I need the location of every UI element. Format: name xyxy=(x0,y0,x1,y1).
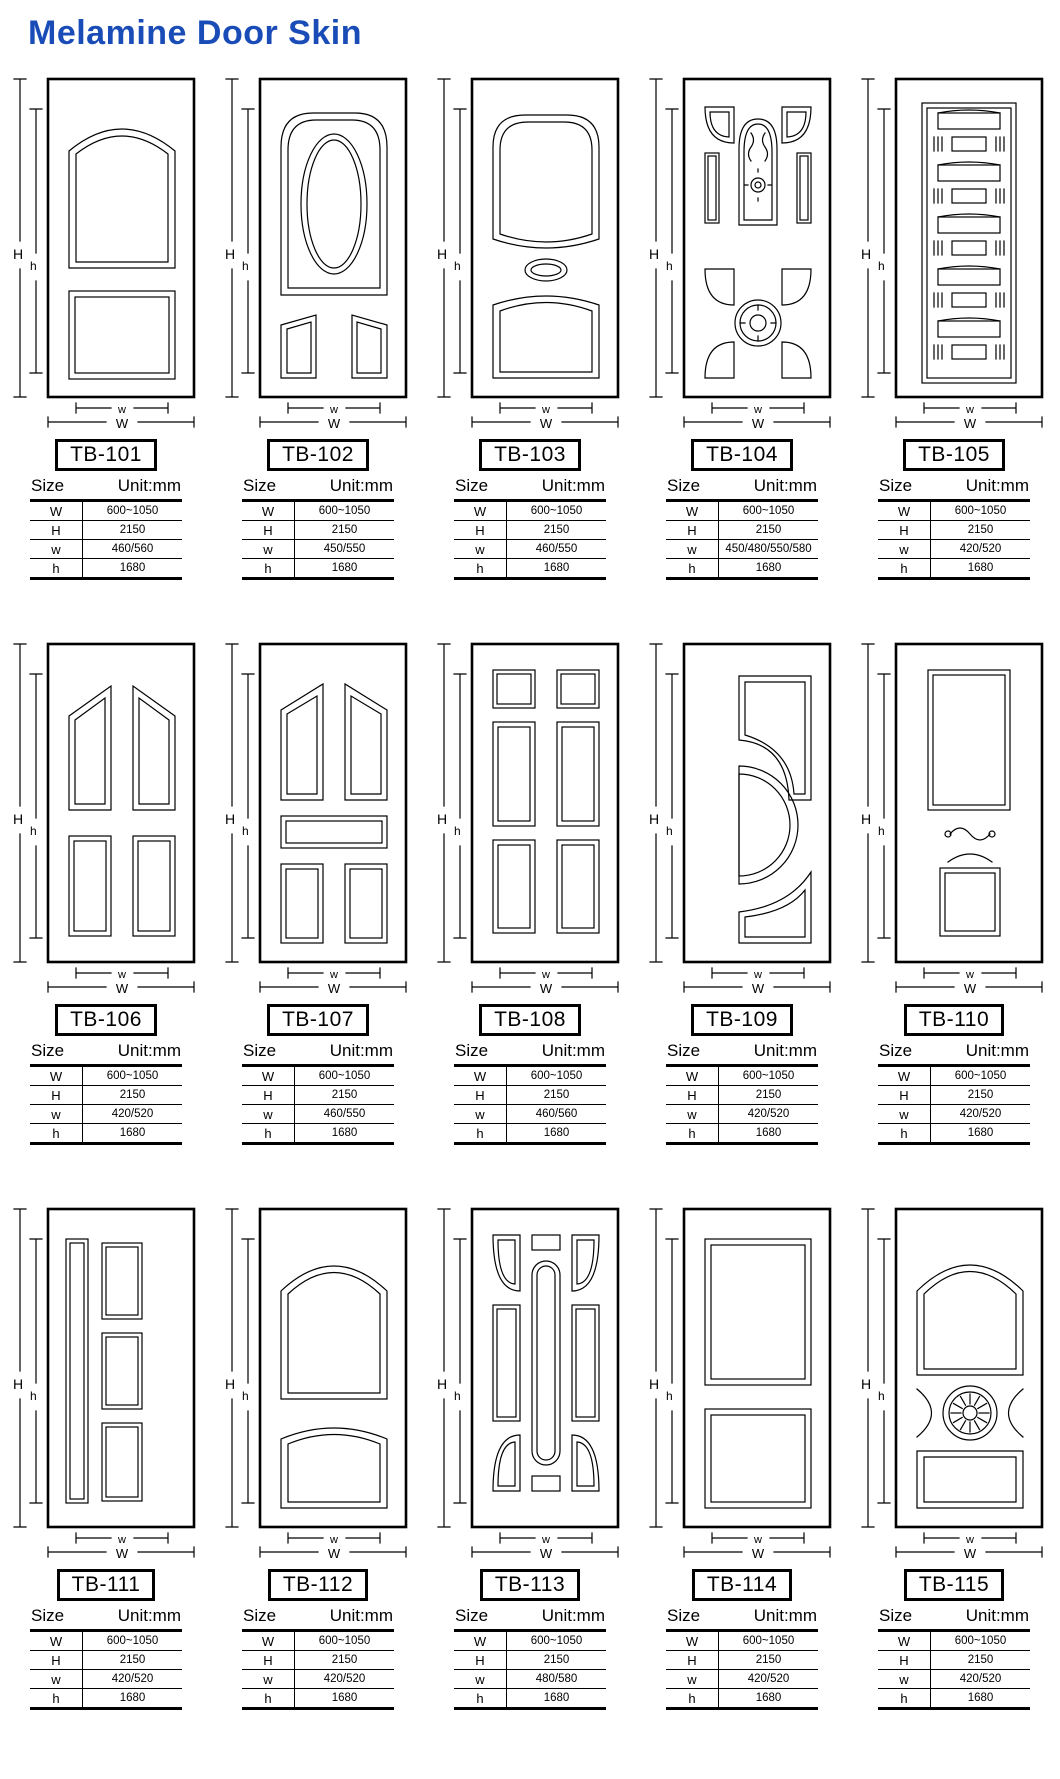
size-row-label: h xyxy=(242,1124,295,1142)
dim-label-outer-width: W xyxy=(752,416,765,431)
door-card-tb-115: H h w W TB-115 Size Unit:mm W 600~1050 H… xyxy=(848,1203,1060,1710)
size-table: Size Unit:mm W 600~1050 H 2150 w 420/520… xyxy=(242,1606,394,1710)
door-linework xyxy=(226,79,406,427)
door-code: TB-108 xyxy=(494,1008,566,1031)
size-table-header: Size Unit:mm xyxy=(454,1606,606,1629)
door-outline xyxy=(48,79,194,397)
dim-label-inner-width: w xyxy=(117,969,126,981)
size-row-w: w 420/520 xyxy=(666,1670,818,1689)
size-row-label: w xyxy=(666,1670,719,1688)
door-linework xyxy=(650,79,830,427)
size-row-label: W xyxy=(30,1067,83,1085)
door-code: TB-113 xyxy=(495,1573,565,1596)
size-row-label: H xyxy=(242,1651,295,1669)
size-row-value: 1680 xyxy=(295,559,394,577)
size-table-unit: Unit:mm xyxy=(118,1041,181,1061)
dim-label-inner-height: h xyxy=(30,824,37,838)
size-table-title: Size xyxy=(667,476,700,496)
size-row-w: w 420/520 xyxy=(878,1670,1030,1689)
door-outline xyxy=(684,644,830,962)
size-table-title: Size xyxy=(243,1041,276,1061)
size-table: Size Unit:mm W 600~1050 H 2150 w 450/550… xyxy=(242,476,394,580)
size-row-value: 600~1050 xyxy=(507,1632,606,1650)
door-card-tb-111: H h w W TB-111 Size Unit:mm W 600~1050 H… xyxy=(0,1203,212,1710)
dim-label-inner-height: h xyxy=(666,259,673,273)
size-row-label: H xyxy=(666,1086,719,1104)
size-row-label: W xyxy=(878,502,931,520)
size-table-header: Size Unit:mm xyxy=(878,1606,1030,1629)
dim-label-outer-height: H xyxy=(225,811,235,827)
size-row-H: H 2150 xyxy=(30,521,182,540)
size-row-label: H xyxy=(878,1086,931,1104)
size-row-H: H 2150 xyxy=(30,1086,182,1105)
size-row-H: H 2150 xyxy=(454,1086,606,1105)
size-row-H: H 2150 xyxy=(878,1651,1030,1670)
size-table-unit: Unit:mm xyxy=(542,476,605,496)
dim-label-outer-width: W xyxy=(328,416,341,431)
dimension-labels: H h w W xyxy=(225,246,341,431)
door-card-tb-113: H h w W TB-113 Size Unit:mm W 600~1050 H… xyxy=(424,1203,636,1710)
size-table-unit: Unit:mm xyxy=(754,1041,817,1061)
size-row-H: H 2150 xyxy=(242,1086,394,1105)
size-row-w: w 420/520 xyxy=(666,1105,818,1124)
size-row-value: 2150 xyxy=(295,1086,394,1104)
door-code-badge: TB-110 xyxy=(904,1004,1004,1036)
door-code: TB-112 xyxy=(283,1573,353,1596)
dim-label-outer-height: H xyxy=(649,811,659,827)
door-code: TB-114 xyxy=(707,1573,777,1596)
size-row-value: 1680 xyxy=(83,1124,182,1142)
size-row-value: 420/520 xyxy=(83,1105,182,1123)
door-card-tb-109: H h w W TB-109 Size Unit:mm W 600~1050 H… xyxy=(636,638,848,1145)
size-row-H: H 2150 xyxy=(666,1086,818,1105)
dimension-labels: H h w W xyxy=(649,1376,765,1561)
dim-label-inner-width: w xyxy=(117,1534,126,1546)
dim-label-outer-height: H xyxy=(649,1376,659,1392)
dim-label-outer-width: W xyxy=(540,1546,553,1561)
size-table-unit: Unit:mm xyxy=(966,1606,1029,1626)
size-row-W: W 600~1050 xyxy=(454,1067,606,1086)
size-row-value: 460/560 xyxy=(83,540,182,558)
size-row-value: 1680 xyxy=(295,1124,394,1142)
door-card-tb-108: H h w W TB-108 Size Unit:mm W 600~1050 H… xyxy=(424,638,636,1145)
door-linework xyxy=(438,79,618,427)
door-code: TB-106 xyxy=(70,1008,142,1031)
size-row-W: W 600~1050 xyxy=(454,502,606,521)
size-row-W: W 600~1050 xyxy=(878,1067,1030,1086)
size-row-h: h 1680 xyxy=(878,1689,1030,1707)
size-row-label: H xyxy=(242,1086,295,1104)
size-row-W: W 600~1050 xyxy=(30,502,182,521)
size-row-label: h xyxy=(878,1689,931,1707)
size-row-value: 600~1050 xyxy=(931,1632,1030,1650)
size-table-body: W 600~1050 H 2150 w 460/560 h 1680 xyxy=(454,1064,606,1145)
dimension-labels: H h w W xyxy=(649,246,765,431)
door-outline xyxy=(260,1209,406,1527)
dim-label-outer-height: H xyxy=(225,246,235,262)
size-table-title: Size xyxy=(667,1606,700,1626)
dim-label-inner-width: w xyxy=(541,969,550,981)
size-table-header: Size Unit:mm xyxy=(666,1041,818,1064)
size-row-label: w xyxy=(666,540,719,558)
size-row-value: 2150 xyxy=(931,521,1030,539)
size-row-w: w 480/580 xyxy=(454,1670,606,1689)
size-table-title: Size xyxy=(455,1041,488,1061)
size-row-value: 2150 xyxy=(83,521,182,539)
door-code-badge: TB-114 xyxy=(692,1569,792,1601)
door-diagram-tb-102: H h w W xyxy=(218,73,418,433)
dim-label-outer-height: H xyxy=(13,1376,23,1392)
door-card-tb-103: H h w W TB-103 Size Unit:mm W 600~1050 H… xyxy=(424,73,636,580)
dim-label-outer-height: H xyxy=(437,811,447,827)
size-table: Size Unit:mm W 600~1050 H 2150 w 420/520… xyxy=(30,1041,182,1145)
size-row-value: 1680 xyxy=(295,1689,394,1707)
size-row-value: 600~1050 xyxy=(83,1632,182,1650)
size-row-value: 600~1050 xyxy=(719,502,818,520)
size-row-W: W 600~1050 xyxy=(30,1067,182,1086)
size-row-label: W xyxy=(878,1067,931,1085)
size-row-label: w xyxy=(666,1105,719,1123)
size-table-title: Size xyxy=(879,1041,912,1061)
size-row-value: 2150 xyxy=(507,521,606,539)
size-row-value: 1680 xyxy=(83,1689,182,1707)
size-table-header: Size Unit:mm xyxy=(666,1606,818,1629)
page-title: Melamine Door Skin xyxy=(28,14,1060,53)
size-row-value: 600~1050 xyxy=(295,1067,394,1085)
size-row-label: w xyxy=(30,1670,83,1688)
door-code-badge: TB-104 xyxy=(691,439,793,471)
size-table-unit: Unit:mm xyxy=(118,1606,181,1626)
size-row-H: H 2150 xyxy=(242,521,394,540)
size-row-value: 420/520 xyxy=(83,1670,182,1688)
size-row-label: H xyxy=(30,521,83,539)
size-table-unit: Unit:mm xyxy=(330,476,393,496)
size-row-value: 450/550 xyxy=(295,540,394,558)
size-row-label: w xyxy=(454,540,507,558)
dim-label-inner-height: h xyxy=(878,1389,885,1403)
size-row-w: w 460/550 xyxy=(454,540,606,559)
size-table-title: Size xyxy=(243,1606,276,1626)
size-row-label: H xyxy=(242,521,295,539)
size-row-value: 1680 xyxy=(931,1689,1030,1707)
size-row-value: 420/520 xyxy=(719,1670,818,1688)
size-row-W: W 600~1050 xyxy=(454,1632,606,1651)
size-row-w: w 450/480/550/580 xyxy=(666,540,818,559)
size-row-h: h 1680 xyxy=(878,559,1030,577)
size-row-h: h 1680 xyxy=(666,1124,818,1142)
door-code-badge: TB-107 xyxy=(267,1004,369,1036)
dim-label-outer-width: W xyxy=(752,1546,765,1561)
size-table: Size Unit:mm W 600~1050 H 2150 w 450/480… xyxy=(666,476,818,580)
size-table-unit: Unit:mm xyxy=(754,1606,817,1626)
size-row-h: h 1680 xyxy=(878,1124,1030,1142)
size-row-value: 2150 xyxy=(507,1651,606,1669)
door-diagram-tb-115: H h w W xyxy=(854,1203,1054,1563)
size-row-value: 600~1050 xyxy=(507,1067,606,1085)
size-row-value: 600~1050 xyxy=(83,1067,182,1085)
size-table: Size Unit:mm W 600~1050 H 2150 w 420/520… xyxy=(878,1041,1030,1145)
door-outline xyxy=(896,1209,1042,1527)
size-table-header: Size Unit:mm xyxy=(242,1041,394,1064)
size-row-value: 600~1050 xyxy=(295,1632,394,1650)
dim-label-inner-width: w xyxy=(329,404,338,416)
door-card-tb-104: H h w W TB-104 Size Unit:mm W 600~1050 H… xyxy=(636,73,848,580)
door-code-badge: TB-109 xyxy=(691,1004,793,1036)
dim-label-inner-width: w xyxy=(329,969,338,981)
size-row-label: h xyxy=(30,1689,83,1707)
size-row-W: W 600~1050 xyxy=(242,502,394,521)
size-row-value: 420/520 xyxy=(295,1670,394,1688)
size-row-label: w xyxy=(30,540,83,558)
size-table: Size Unit:mm W 600~1050 H 2150 w 460/550… xyxy=(242,1041,394,1145)
size-row-label: H xyxy=(878,1651,931,1669)
dim-label-inner-width: w xyxy=(541,1534,550,1546)
door-code: TB-104 xyxy=(706,443,778,466)
size-row-label: H xyxy=(454,1651,507,1669)
door-code: TB-115 xyxy=(919,1573,989,1596)
size-row-H: H 2150 xyxy=(878,521,1030,540)
size-row-value: 1680 xyxy=(719,1689,818,1707)
door-code-badge: TB-106 xyxy=(55,1004,157,1036)
size-row-w: w 460/560 xyxy=(454,1105,606,1124)
size-table-body: W 600~1050 H 2150 w 420/520 h 1680 xyxy=(30,1064,182,1145)
dim-label-outer-width: W xyxy=(752,981,765,996)
size-row-value: 450/480/550/580 xyxy=(719,540,818,558)
size-table-body: W 600~1050 H 2150 w 420/520 h 1680 xyxy=(666,1629,818,1710)
dim-label-outer-width: W xyxy=(328,1546,341,1561)
dim-label-outer-width: W xyxy=(116,981,129,996)
size-row-value: 1680 xyxy=(507,1689,606,1707)
door-card-tb-102: H h w W TB-102 Size Unit:mm W 600~1050 H… xyxy=(212,73,424,580)
size-row-h: h 1680 xyxy=(242,1124,394,1142)
size-row-value: 1680 xyxy=(507,1124,606,1142)
size-table-header: Size Unit:mm xyxy=(454,476,606,499)
door-diagram-tb-112: H h w W xyxy=(218,1203,418,1563)
size-table-body: W 600~1050 H 2150 w 480/580 h 1680 xyxy=(454,1629,606,1710)
size-row-H: H 2150 xyxy=(454,1651,606,1670)
size-table-header: Size Unit:mm xyxy=(30,1606,182,1629)
size-row-label: h xyxy=(878,559,931,577)
door-code-badge: TB-105 xyxy=(903,439,1005,471)
size-row-label: W xyxy=(454,1067,507,1085)
dim-label-outer-width: W xyxy=(540,416,553,431)
dim-label-inner-height: h xyxy=(666,824,673,838)
size-row-value: 1680 xyxy=(719,559,818,577)
size-table-body: W 600~1050 H 2150 w 420/520 h 1680 xyxy=(878,499,1030,580)
size-row-w: w 420/520 xyxy=(242,1670,394,1689)
size-row-W: W 600~1050 xyxy=(242,1067,394,1086)
dim-label-inner-height: h xyxy=(666,1389,673,1403)
dim-label-outer-width: W xyxy=(964,1546,977,1561)
size-row-W: W 600~1050 xyxy=(30,1632,182,1651)
dim-label-inner-height: h xyxy=(878,824,885,838)
door-outline xyxy=(684,1209,830,1527)
size-table-title: Size xyxy=(243,476,276,496)
door-card-tb-110: H h w W TB-110 Size Unit:mm W 600~1050 H… xyxy=(848,638,1060,1145)
size-table-body: W 600~1050 H 2150 w 420/520 h 1680 xyxy=(878,1629,1030,1710)
door-card-tb-107: H h w W TB-107 Size Unit:mm W 600~1050 H… xyxy=(212,638,424,1145)
door-code: TB-107 xyxy=(282,1008,354,1031)
dim-label-inner-width: w xyxy=(117,404,126,416)
size-row-h: h 1680 xyxy=(454,1124,606,1142)
door-card-tb-112: H h w W TB-112 Size Unit:mm W 600~1050 H… xyxy=(212,1203,424,1710)
door-diagram-tb-110: H h w W xyxy=(854,638,1054,998)
size-row-value: 600~1050 xyxy=(931,502,1030,520)
door-linework xyxy=(438,1209,618,1557)
size-row-value: 460/560 xyxy=(507,1105,606,1123)
size-row-value: 600~1050 xyxy=(931,1067,1030,1085)
size-row-label: h xyxy=(666,1689,719,1707)
size-row-H: H 2150 xyxy=(878,1086,1030,1105)
size-table-header: Size Unit:mm xyxy=(878,476,1030,499)
size-table-header: Size Unit:mm xyxy=(454,1041,606,1064)
size-row-w: w 460/560 xyxy=(30,540,182,559)
size-row-value: 2150 xyxy=(83,1086,182,1104)
door-diagram-tb-113: H h w W xyxy=(430,1203,630,1563)
door-diagram-tb-109: H h w W xyxy=(642,638,842,998)
size-table-title: Size xyxy=(455,476,488,496)
dim-label-inner-height: h xyxy=(30,1389,37,1403)
size-table-unit: Unit:mm xyxy=(118,476,181,496)
dim-label-outer-height: H xyxy=(649,246,659,262)
size-row-label: h xyxy=(454,1689,507,1707)
door-linework xyxy=(650,644,830,992)
door-diagram-tb-107: H h w W xyxy=(218,638,418,998)
size-table-unit: Unit:mm xyxy=(330,1041,393,1061)
door-code-badge: TB-103 xyxy=(479,439,581,471)
size-table: Size Unit:mm W 600~1050 H 2150 w 420/520… xyxy=(30,1606,182,1710)
size-table-unit: Unit:mm xyxy=(330,1606,393,1626)
size-row-label: h xyxy=(666,559,719,577)
door-code-badge: TB-115 xyxy=(904,1569,1004,1601)
size-row-h: h 1680 xyxy=(242,1689,394,1707)
dim-label-inner-height: h xyxy=(454,1389,461,1403)
size-row-label: H xyxy=(454,521,507,539)
size-row-label: W xyxy=(454,502,507,520)
door-card-tb-105: H h w W TB-105 Size Unit:mm W 600~1050 H… xyxy=(848,73,1060,580)
size-row-w: w 420/520 xyxy=(30,1670,182,1689)
size-row-value: 1680 xyxy=(719,1124,818,1142)
door-linework xyxy=(862,644,1042,992)
size-table-unit: Unit:mm xyxy=(754,476,817,496)
size-table-header: Size Unit:mm xyxy=(242,1606,394,1629)
size-row-w: w 450/550 xyxy=(242,540,394,559)
door-code-badge: TB-113 xyxy=(480,1569,580,1601)
size-row-value: 1680 xyxy=(931,559,1030,577)
size-row-value: 1680 xyxy=(931,1124,1030,1142)
dim-label-outer-height: H xyxy=(861,811,871,827)
dim-label-inner-height: h xyxy=(30,259,37,273)
size-row-value: 460/550 xyxy=(507,540,606,558)
size-row-W: W 600~1050 xyxy=(666,502,818,521)
size-row-value: 2150 xyxy=(295,521,394,539)
size-row-label: H xyxy=(454,1086,507,1104)
door-code: TB-101 xyxy=(70,443,142,466)
size-row-W: W 600~1050 xyxy=(878,502,1030,521)
size-row-value: 2150 xyxy=(719,521,818,539)
door-code: TB-109 xyxy=(706,1008,778,1031)
size-table-header: Size Unit:mm xyxy=(30,476,182,499)
size-table-header: Size Unit:mm xyxy=(30,1041,182,1064)
size-table-body: W 600~1050 H 2150 w 460/550 h 1680 xyxy=(242,1064,394,1145)
size-row-label: W xyxy=(242,502,295,520)
size-row-label: h xyxy=(30,559,83,577)
size-row-label: h xyxy=(242,1689,295,1707)
door-diagram-tb-104: H h w W xyxy=(642,73,842,433)
size-row-value: 420/520 xyxy=(931,540,1030,558)
dim-label-inner-width: w xyxy=(965,1534,974,1546)
size-row-value: 1680 xyxy=(83,559,182,577)
size-row-label: W xyxy=(242,1632,295,1650)
door-outline xyxy=(48,644,194,962)
dim-label-outer-height: H xyxy=(437,1376,447,1392)
size-table-title: Size xyxy=(31,476,64,496)
size-row-W: W 600~1050 xyxy=(878,1632,1030,1651)
size-row-label: w xyxy=(878,1670,931,1688)
size-row-label: W xyxy=(666,1067,719,1085)
size-row-h: h 1680 xyxy=(30,1124,182,1142)
size-table-title: Size xyxy=(31,1606,64,1626)
size-row-label: W xyxy=(666,1632,719,1650)
size-row-value: 460/550 xyxy=(295,1105,394,1123)
size-row-value: 2150 xyxy=(83,1651,182,1669)
dimension-labels: H h w W xyxy=(13,246,129,431)
size-table-header: Size Unit:mm xyxy=(666,476,818,499)
size-row-label: h xyxy=(454,559,507,577)
size-table-title: Size xyxy=(879,1606,912,1626)
size-row-label: h xyxy=(242,559,295,577)
door-linework xyxy=(650,1209,830,1557)
door-linework xyxy=(862,1209,1042,1557)
door-linework xyxy=(862,79,1042,427)
size-row-h: h 1680 xyxy=(242,559,394,577)
size-table-title: Size xyxy=(31,1041,64,1061)
size-row-value: 600~1050 xyxy=(719,1067,818,1085)
size-table-body: W 600~1050 H 2150 w 450/550 h 1680 xyxy=(242,499,394,580)
size-row-label: w xyxy=(454,1105,507,1123)
size-row-h: h 1680 xyxy=(454,559,606,577)
size-row-label: w xyxy=(30,1105,83,1123)
size-row-W: W 600~1050 xyxy=(242,1632,394,1651)
dim-label-outer-width: W xyxy=(540,981,553,996)
door-code: TB-111 xyxy=(72,1573,141,1596)
size-table-body: W 600~1050 H 2150 w 450/480/550/580 h 16… xyxy=(666,499,818,580)
dimension-labels: H h w W xyxy=(225,1376,341,1561)
size-row-label: H xyxy=(666,1651,719,1669)
dim-label-inner-width: w xyxy=(753,969,762,981)
dim-label-inner-height: h xyxy=(242,824,249,838)
door-outline xyxy=(260,644,406,962)
size-row-h: h 1680 xyxy=(666,1689,818,1707)
size-row-value: 2150 xyxy=(931,1086,1030,1104)
size-row-value: 2150 xyxy=(507,1086,606,1104)
door-diagram-tb-105: H h w W xyxy=(854,73,1054,433)
dim-label-inner-width: w xyxy=(965,969,974,981)
size-row-label: H xyxy=(666,521,719,539)
size-table-body: W 600~1050 H 2150 w 420/520 h 1680 xyxy=(666,1064,818,1145)
size-table-body: W 600~1050 H 2150 w 460/550 h 1680 xyxy=(454,499,606,580)
door-code-badge: TB-108 xyxy=(479,1004,581,1036)
dimension-labels: H h w W xyxy=(861,246,977,431)
dimension-labels: H h w W xyxy=(861,811,977,996)
size-row-label: h xyxy=(30,1124,83,1142)
door-outline xyxy=(472,644,618,962)
size-row-label: W xyxy=(454,1632,507,1650)
dim-label-inner-height: h xyxy=(454,824,461,838)
dim-label-outer-height: H xyxy=(861,246,871,262)
size-row-H: H 2150 xyxy=(242,1651,394,1670)
size-table-body: W 600~1050 H 2150 w 420/520 h 1680 xyxy=(30,1629,182,1710)
